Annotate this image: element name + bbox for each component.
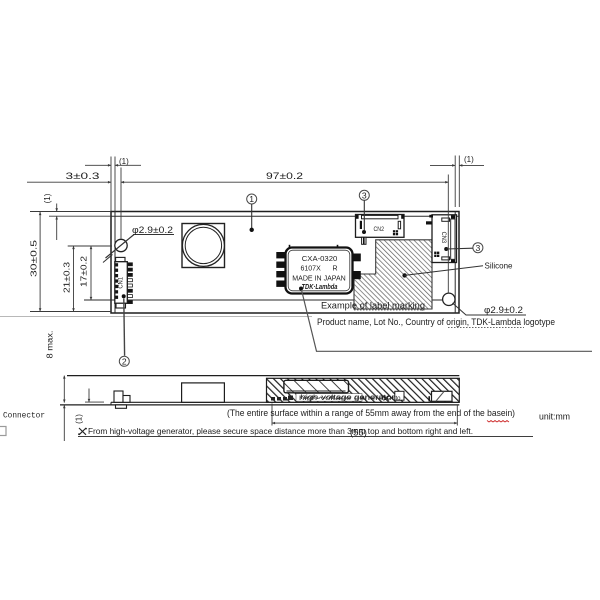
svg-text:(1): (1) <box>464 155 474 164</box>
svg-text:3: 3 <box>476 243 481 253</box>
svg-text:high-voltage generator: high-voltage generator <box>301 395 395 401</box>
svg-text:6107X: 6107X <box>301 266 322 273</box>
svg-text:CXA-0320: CXA-0320 <box>302 256 338 263</box>
svg-text:97±0.2: 97±0.2 <box>266 171 303 182</box>
svg-text:Connector: Connector <box>3 412 45 421</box>
svg-text:Silicone: Silicone <box>485 261 513 271</box>
svg-text:CN2: CN2 <box>374 226 385 233</box>
svg-text:8 max.: 8 max. <box>46 331 55 359</box>
svg-text:(1): (1) <box>119 157 129 166</box>
svg-text:Product name, Lot No., Country: Product name, Lot No., Country of origin… <box>317 317 555 328</box>
svg-text:Example of label marking: Example of label marking <box>321 301 425 311</box>
svg-text:(1): (1) <box>75 414 84 424</box>
svg-text:TDK·Lambda: TDK·Lambda <box>302 282 338 291</box>
svg-text:21±0.3: 21±0.3 <box>61 262 71 293</box>
svg-text:17±0.2: 17±0.2 <box>79 256 89 287</box>
svg-text:3: 3 <box>362 190 367 200</box>
svg-text:(1): (1) <box>43 193 52 203</box>
svg-text:φ2.9±0.2: φ2.9±0.2 <box>132 225 173 236</box>
svg-text:CN1: CN1 <box>118 276 125 288</box>
svg-text:to: to <box>396 396 402 402</box>
svg-text:CN3: CN3 <box>440 232 447 244</box>
svg-text:R: R <box>333 266 338 273</box>
svg-text:unit:mm: unit:mm <box>539 412 570 422</box>
svg-text:(55): (55) <box>350 428 367 438</box>
svg-text:2: 2 <box>122 356 127 366</box>
svg-text:(The entire surface within a r: (The entire surface within a range of 55… <box>227 408 515 418</box>
svg-text:φ2.9±0.2: φ2.9±0.2 <box>484 305 523 316</box>
svg-text:1: 1 <box>249 194 254 204</box>
svg-text:From high-voltage generator, p: From high-voltage generator, please secu… <box>88 426 473 436</box>
svg-text:30±0.5: 30±0.5 <box>29 240 39 277</box>
svg-text:3±0.3: 3±0.3 <box>66 171 100 182</box>
